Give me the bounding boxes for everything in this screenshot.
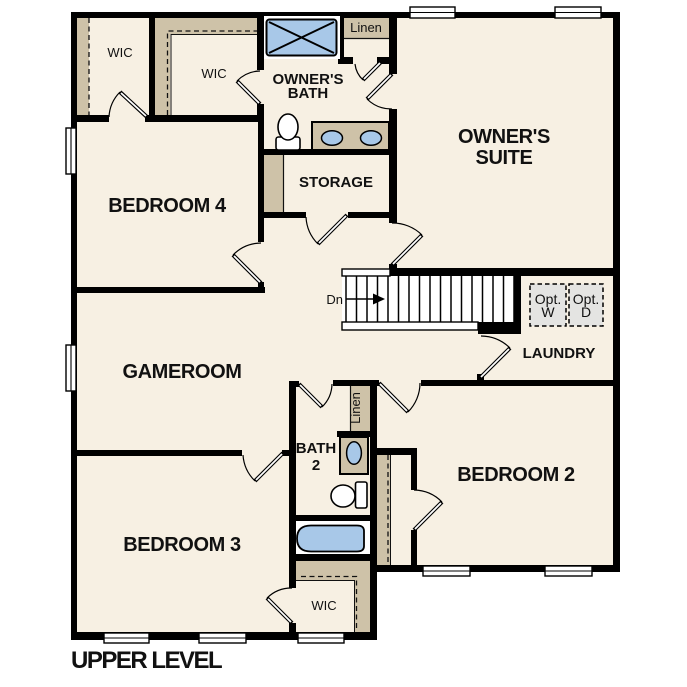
- svg-text:WIC: WIC: [201, 66, 226, 81]
- svg-text:Linen: Linen: [350, 20, 382, 35]
- svg-text:Dn: Dn: [326, 292, 343, 307]
- svg-text:SUITE: SUITE: [476, 147, 533, 169]
- svg-text:OWNER'S: OWNER'S: [458, 126, 550, 148]
- svg-text:BEDROOM 4: BEDROOM 4: [108, 195, 227, 217]
- svg-text:D: D: [581, 304, 591, 320]
- svg-text:LAUNDRY: LAUNDRY: [523, 345, 596, 362]
- svg-text:BEDROOM 3: BEDROOM 3: [123, 534, 241, 556]
- svg-text:2: 2: [312, 457, 320, 474]
- svg-text:UPPER LEVEL: UPPER LEVEL: [71, 647, 222, 674]
- svg-text:Linen: Linen: [348, 392, 363, 424]
- svg-text:GAMEROOM: GAMEROOM: [122, 361, 241, 383]
- svg-text:WIC: WIC: [107, 45, 132, 60]
- svg-text:BEDROOM 2: BEDROOM 2: [457, 464, 575, 486]
- svg-text:STORAGE: STORAGE: [299, 174, 373, 191]
- svg-text:BATH: BATH: [288, 85, 329, 102]
- svg-text:BATH: BATH: [296, 440, 337, 457]
- svg-text:WIC: WIC: [311, 598, 336, 613]
- svg-text:W: W: [541, 304, 555, 320]
